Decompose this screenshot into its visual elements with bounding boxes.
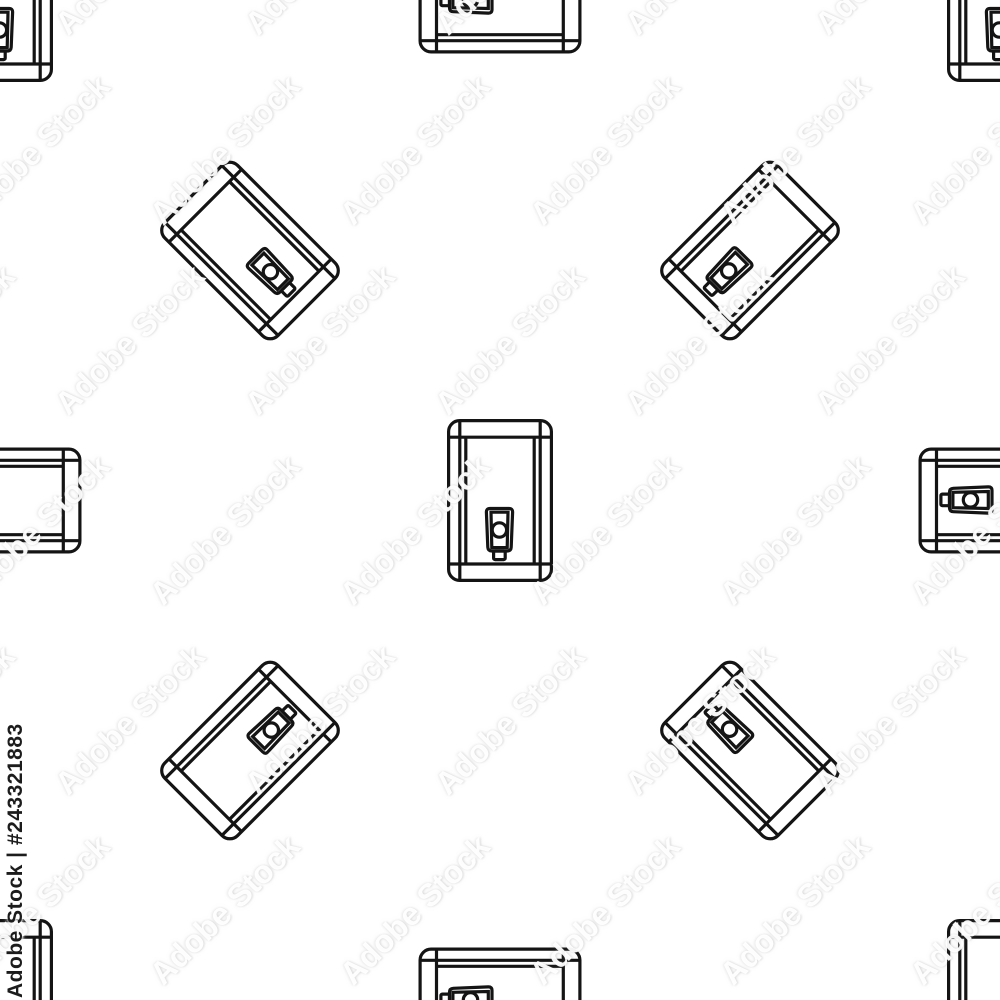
clasp-latch-tab [494, 551, 506, 560]
adobe-stock-watermark: Adobe Stock [428, 258, 592, 422]
adobe-stock-watermark: Adobe Stock [143, 448, 307, 612]
adobe-stock-watermark: Adobe Stock [48, 258, 212, 422]
suitcase-icon [947, 0, 1000, 82]
clasp-keyhole-circle [992, 22, 1000, 36]
clasp-inner-outline [711, 710, 748, 747]
clasp-keyhole-circle [0, 22, 7, 36]
clasp-keyhole-circle [463, 0, 477, 7]
case-body-outline [657, 657, 843, 843]
adobe-stock-watermark: Adobe Stock [333, 68, 497, 232]
suitcase-icon [655, 655, 845, 845]
clasp-latch-tab [941, 494, 950, 506]
clasp-outer-outline [246, 247, 295, 296]
adobe-stock-watermark: Adobe Stock [713, 828, 877, 992]
clasp-latch-tab [0, 51, 5, 60]
clasp-outer-outline [247, 705, 296, 754]
suitcase-icon [447, 419, 553, 582]
adobe-stock-watermark: Adobe Stock [808, 258, 972, 422]
adobe-stock-watermark: Adobe Stock [0, 258, 22, 422]
case-body-outline [949, 920, 1000, 1000]
adobe-stock-watermark: Adobe Stock [238, 0, 402, 42]
adobe-stock-watermark: Adobe Stock [903, 68, 1000, 232]
clasp-latch-tab [441, 0, 450, 5]
suitcase-icon [919, 447, 1000, 553]
suitcase-icon [419, 947, 582, 1000]
case-top-band-line [758, 169, 831, 242]
clasp-inner-outline [710, 252, 747, 289]
adobe-stock-watermark: Adobe Stock [143, 828, 307, 992]
case-body-outline [420, 949, 580, 1000]
clasp-inner-outline [252, 253, 289, 290]
suitcase-icon [655, 155, 845, 345]
adobe-stock-watermark: Adobe Stock [523, 68, 687, 232]
case-body-outline [420, 0, 580, 51]
case-bottom-band-line [669, 669, 742, 742]
clasp-keyhole-circle [261, 719, 281, 739]
adobe-stock-watermark: Adobe Stock [713, 448, 877, 612]
clasp-keyhole-circle [463, 992, 477, 1000]
suitcase-icon [155, 155, 345, 345]
clasp-latch-tab [441, 994, 450, 1000]
clasp-outer-outline [705, 705, 754, 754]
adobe-stock-watermark: Adobe Stock [48, 0, 212, 42]
clasp-inner-outline [253, 711, 290, 748]
suitcase-icon [155, 655, 345, 845]
suitcase-icon [947, 919, 1000, 1000]
suitcase-icon [419, 0, 582, 53]
case-body-outline [157, 657, 343, 843]
clasp-keyhole-circle [260, 261, 280, 281]
clasp-outer-outline [705, 246, 754, 295]
clasp-keyhole-circle [963, 492, 977, 506]
case-body-outline [449, 420, 552, 580]
adobe-stock-watermark: Adobe Stock [0, 68, 117, 232]
stock-id-watermark: Adobe Stock | #243321883 [4, 758, 28, 998]
clasp-keyhole-circle [492, 522, 506, 536]
clasp-latch-tab [994, 51, 1000, 60]
adobe-stock-watermark: Adobe Stock [618, 0, 782, 42]
case-body-outline [657, 157, 843, 343]
case-top-band-line [169, 169, 242, 242]
adobe-stock-watermark: Adobe Stock [428, 638, 592, 802]
suitcase-icon [0, 0, 53, 82]
pattern-canvas: Adobe StockAdobe StockAdobe StockAdobe S… [0, 0, 1000, 1000]
case-bottom-band-line [259, 669, 332, 742]
suitcase-icon [0, 447, 82, 553]
case-body-outline [157, 157, 343, 343]
